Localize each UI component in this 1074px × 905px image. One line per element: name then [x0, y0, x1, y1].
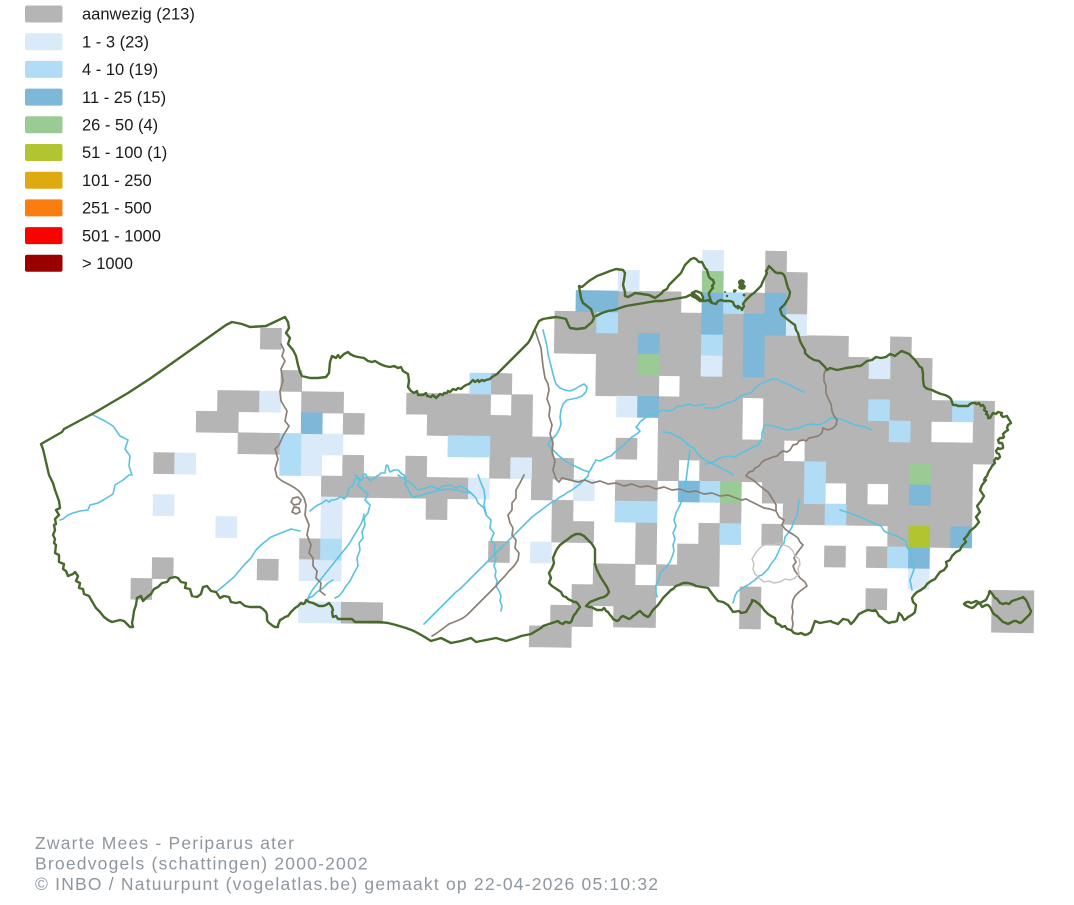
- svg-text:26 - 50 (4): 26 - 50 (4): [82, 117, 158, 135]
- svg-text:4 - 10 (19): 4 - 10 (19): [82, 61, 158, 79]
- svg-text:11 - 25 (15): 11 - 25 (15): [82, 89, 166, 107]
- svg-text:> 1000: > 1000: [82, 255, 133, 273]
- svg-text:aanwezig (213): aanwezig (213): [82, 6, 195, 24]
- svg-text:Zwarte Mees - Periparus ater: Zwarte Mees - Periparus ater: [35, 833, 295, 853]
- svg-text:251 - 500: 251 - 500: [82, 200, 152, 218]
- svg-text:Broedvogels (schattingen) 2000: Broedvogels (schattingen) 2000-2002: [35, 854, 369, 874]
- svg-text:51 - 100 (1): 51 - 100 (1): [82, 144, 167, 162]
- svg-text:501 - 1000: 501 - 1000: [82, 227, 161, 245]
- svg-text:101 - 250: 101 - 250: [82, 172, 152, 190]
- svg-text:© INBO / Natuurpunt (vogelatla: © INBO / Natuurpunt (vogelatlas.be) gema…: [35, 874, 659, 894]
- svg-text:1 - 3 (23): 1 - 3 (23): [82, 33, 149, 51]
